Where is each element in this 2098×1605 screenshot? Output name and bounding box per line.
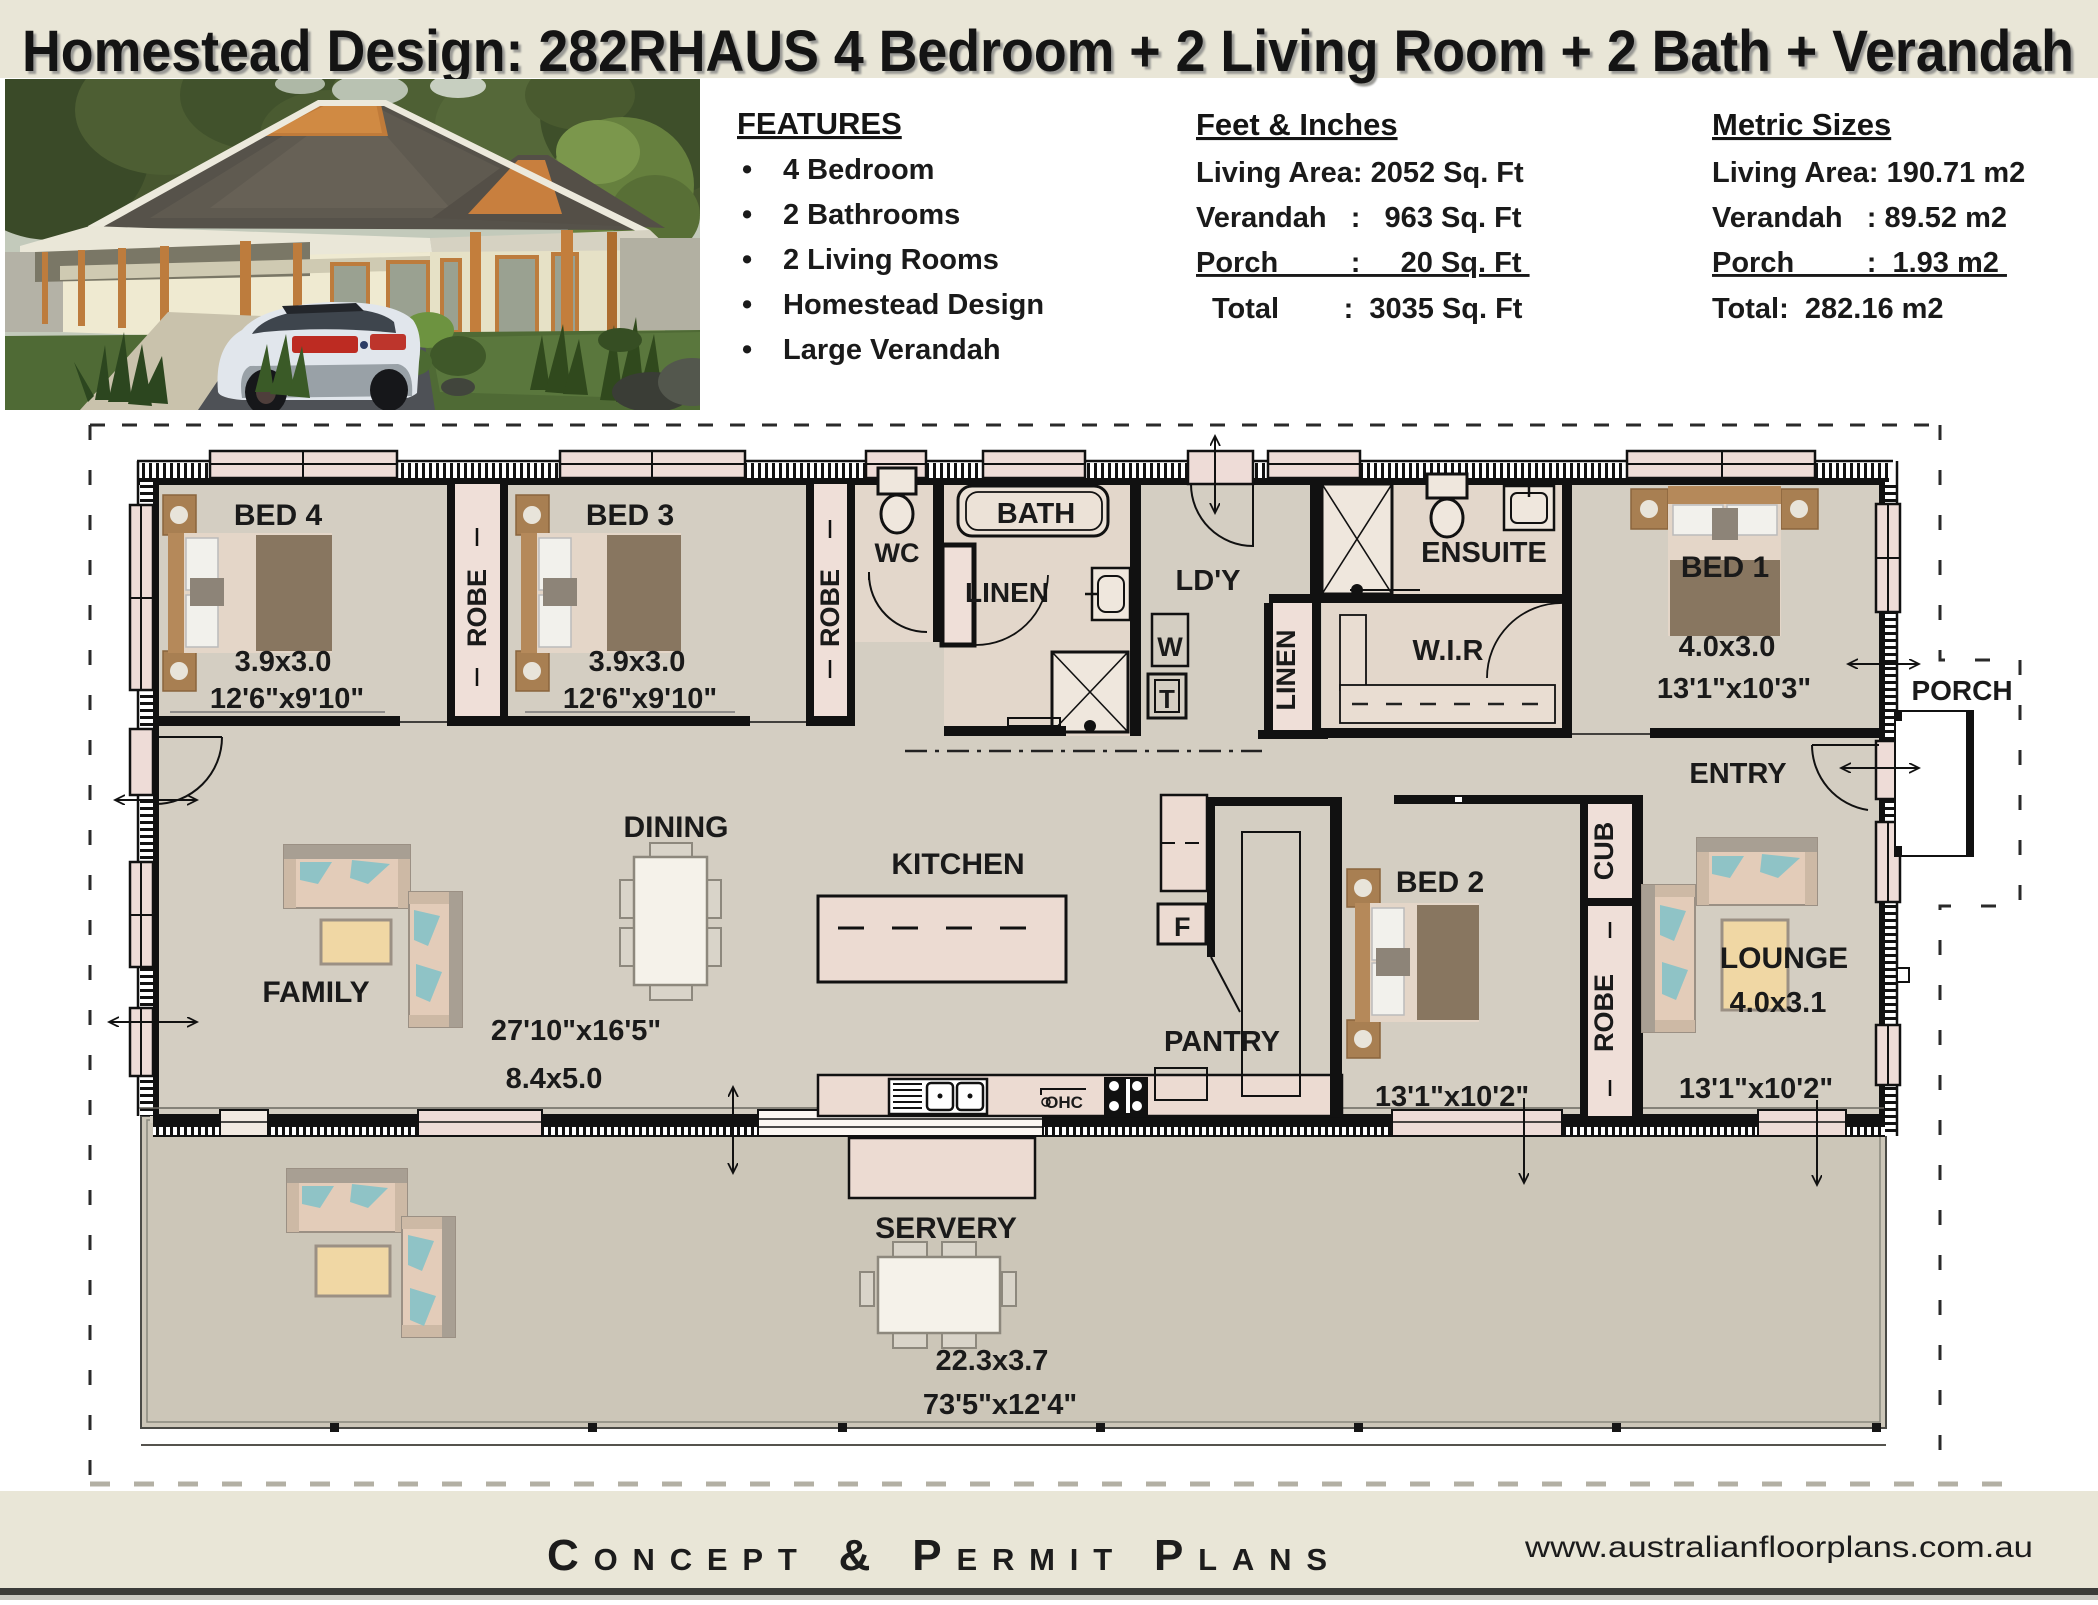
svg-text:Homestead Design: Homestead Design xyxy=(783,289,1044,321)
svg-text:Living Area: 2052 Sq. Ft: Living Area: 2052 Sq. Ft xyxy=(1196,157,1524,189)
svg-text:www.australianfloorplans.com.a: www.australianfloorplans.com.au xyxy=(1524,1531,2033,1564)
svg-text:•: • xyxy=(742,244,752,276)
svg-text:Total : 3035 Sq. Ft: Total : 3035 Sq. Ft xyxy=(1212,293,1523,325)
svg-text:ENSUITE: ENSUITE xyxy=(1421,537,1547,569)
svg-text:W: W xyxy=(1157,632,1183,662)
svg-text:Porch : 20 Sq. Ft: Porch : 20 Sq. Ft xyxy=(1196,247,1530,279)
svg-text:4.0x3.0: 4.0x3.0 xyxy=(1679,631,1776,663)
svg-text:PORCH: PORCH xyxy=(1911,675,2012,706)
svg-text:Living Area: 190.71 m2: Living Area: 190.71 m2 xyxy=(1712,157,2025,189)
svg-text:BED 4: BED 4 xyxy=(234,499,323,532)
svg-text:F: F xyxy=(1174,912,1191,942)
svg-text:12'6"x9'10": 12'6"x9'10" xyxy=(563,683,717,715)
svg-text:FEATURES: FEATURES xyxy=(737,106,902,141)
svg-text:BED 1: BED 1 xyxy=(1681,551,1769,584)
svg-text:Large Verandah: Large Verandah xyxy=(783,334,1001,366)
svg-text:Homestead Design: 282RHAUS 4: Homestead Design: 282RHAUS 4 Bedroom + 2… xyxy=(22,19,2074,84)
svg-text:•: • xyxy=(742,199,752,231)
svg-text:•: • xyxy=(742,289,752,321)
svg-text:Concept & Permit Plans: Concept & Permit Plans xyxy=(547,1531,1339,1580)
svg-text:13'1"x10'2": 13'1"x10'2" xyxy=(1375,1081,1529,1113)
svg-text:LD'Y: LD'Y xyxy=(1176,565,1241,597)
svg-text:12'6"x9'10": 12'6"x9'10" xyxy=(210,683,364,715)
svg-text:Verandah : 89.52 m2: Verandah : 89.52 m2 xyxy=(1712,202,2007,234)
svg-text:73'5"x12'4": 73'5"x12'4" xyxy=(923,1389,1077,1421)
svg-text:Verandah : 963 Sq. Ft: Verandah : 963 Sq. Ft xyxy=(1196,202,1522,234)
svg-text:DINING: DINING xyxy=(624,811,729,844)
svg-text:Total: 282.16 m2: Total: 282.16 m2 xyxy=(1712,293,1944,325)
svg-text:13'1"x10'2": 13'1"x10'2" xyxy=(1679,1073,1833,1105)
svg-text:KITCHEN: KITCHEN xyxy=(891,848,1024,881)
svg-text:4 Bedroom: 4 Bedroom xyxy=(783,154,934,186)
svg-text:3.9x3.0: 3.9x3.0 xyxy=(235,646,332,678)
svg-text:FAMILY: FAMILY xyxy=(262,976,369,1009)
svg-text:LINEN: LINEN xyxy=(1271,630,1301,711)
svg-text:2 Bathrooms: 2 Bathrooms xyxy=(783,199,960,231)
svg-text:BED 3: BED 3 xyxy=(586,499,674,532)
svg-text:LOUNGE: LOUNGE xyxy=(1720,942,1848,975)
svg-text:CUB: CUB xyxy=(1589,822,1619,881)
svg-text:Feet & Inches: Feet & Inches xyxy=(1196,107,1398,142)
svg-text:8.4x5.0: 8.4x5.0 xyxy=(506,1063,603,1095)
svg-text:3.9x3.0: 3.9x3.0 xyxy=(589,646,686,678)
svg-text:BED 2: BED 2 xyxy=(1396,866,1484,899)
svg-text:PANTRY: PANTRY xyxy=(1164,1026,1280,1058)
svg-text:13'1"x10'3": 13'1"x10'3" xyxy=(1657,673,1811,705)
svg-text:4.0x3.1: 4.0x3.1 xyxy=(1730,987,1827,1019)
svg-text:LINEN: LINEN xyxy=(965,577,1049,608)
svg-text:T: T xyxy=(1159,684,1175,714)
svg-text:ENTRY: ENTRY xyxy=(1689,758,1786,790)
svg-text:22.3x3.7: 22.3x3.7 xyxy=(936,1345,1049,1377)
svg-text:W.I.R: W.I.R xyxy=(1413,635,1484,667)
svg-text:•: • xyxy=(742,334,752,366)
svg-text:SERVERY: SERVERY xyxy=(875,1212,1017,1245)
svg-text:Porch : 1.93 m2: Porch : 1.93 m2 xyxy=(1712,247,2007,279)
svg-text:ROBE: ROBE xyxy=(1589,974,1619,1052)
svg-text:ROBE: ROBE xyxy=(462,569,492,647)
svg-text:WC: WC xyxy=(875,538,920,568)
svg-text:BATH: BATH xyxy=(997,498,1075,530)
svg-text:Metric Sizes: Metric Sizes xyxy=(1712,107,1891,142)
svg-text:2 Living Rooms: 2 Living Rooms xyxy=(783,244,999,276)
svg-text:27'10"x16'5": 27'10"x16'5" xyxy=(491,1015,661,1047)
svg-text:•: • xyxy=(742,154,752,186)
svg-text:OHC: OHC xyxy=(1045,1093,1083,1112)
svg-text:ROBE: ROBE xyxy=(815,569,845,647)
